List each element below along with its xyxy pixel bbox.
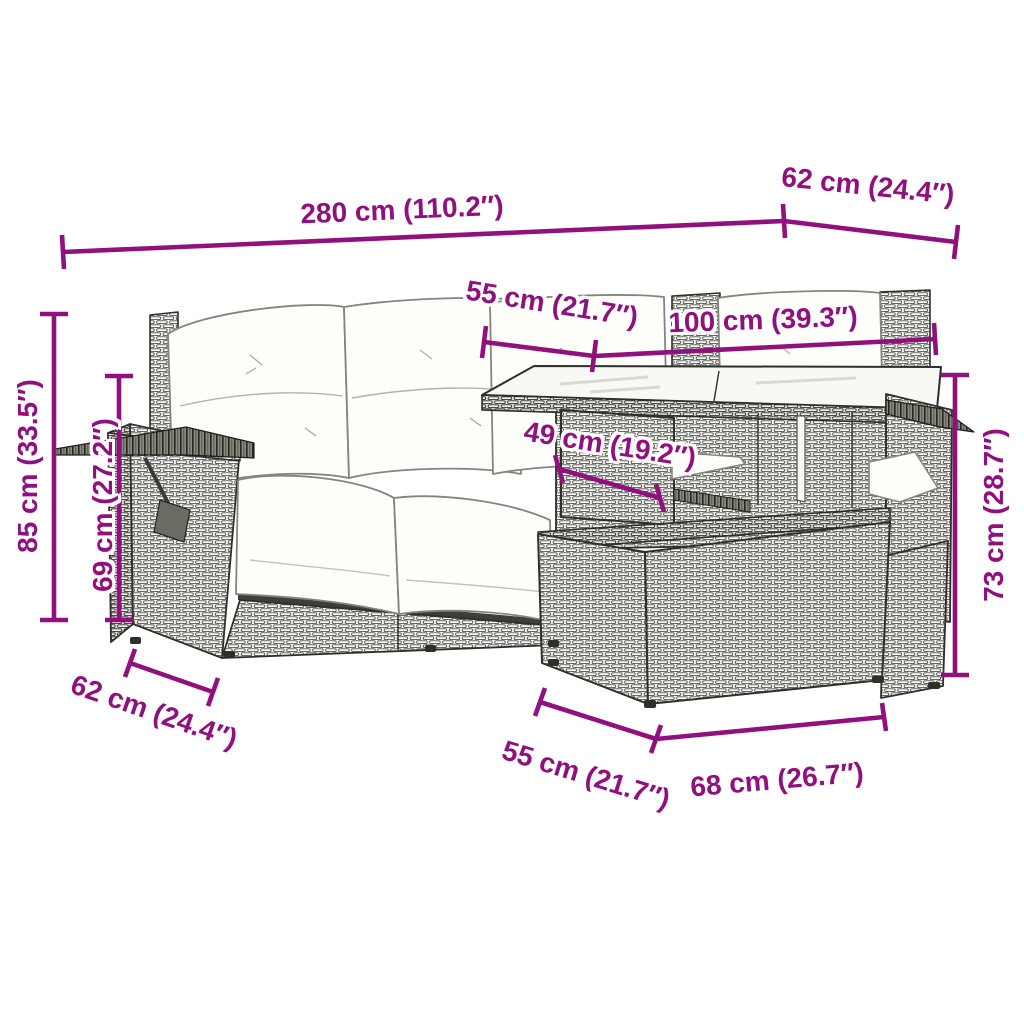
dimension-label-left-85: 85 cm (33.5″) — [12, 379, 44, 553]
dim-line-bottom-left-62 — [130, 663, 213, 692]
rattan-sofa-set — [55, 290, 974, 708]
dim-line-top-right-depth — [784, 221, 956, 242]
dimension-label-upper-100: 100 cm (39.3″) — [668, 301, 858, 340]
left-armrest — [55, 424, 254, 658]
dim-line-top-width — [63, 221, 784, 252]
glass-support-post — [797, 416, 805, 502]
furniture-line-art — [0, 0, 1024, 1024]
dim-line-bottom-68 — [656, 717, 884, 739]
dim-line-bottom-55 — [540, 702, 656, 739]
ottoman — [538, 508, 890, 704]
dimension-diagram: 280 cm (110.2″) 62 cm (24.4″) 55 cm (21.… — [0, 0, 1024, 1024]
dimension-label-right-73: 73 cm (28.7″) — [978, 428, 1010, 602]
dimension-label-left-69: 69 cm (27.2″) — [87, 418, 119, 592]
